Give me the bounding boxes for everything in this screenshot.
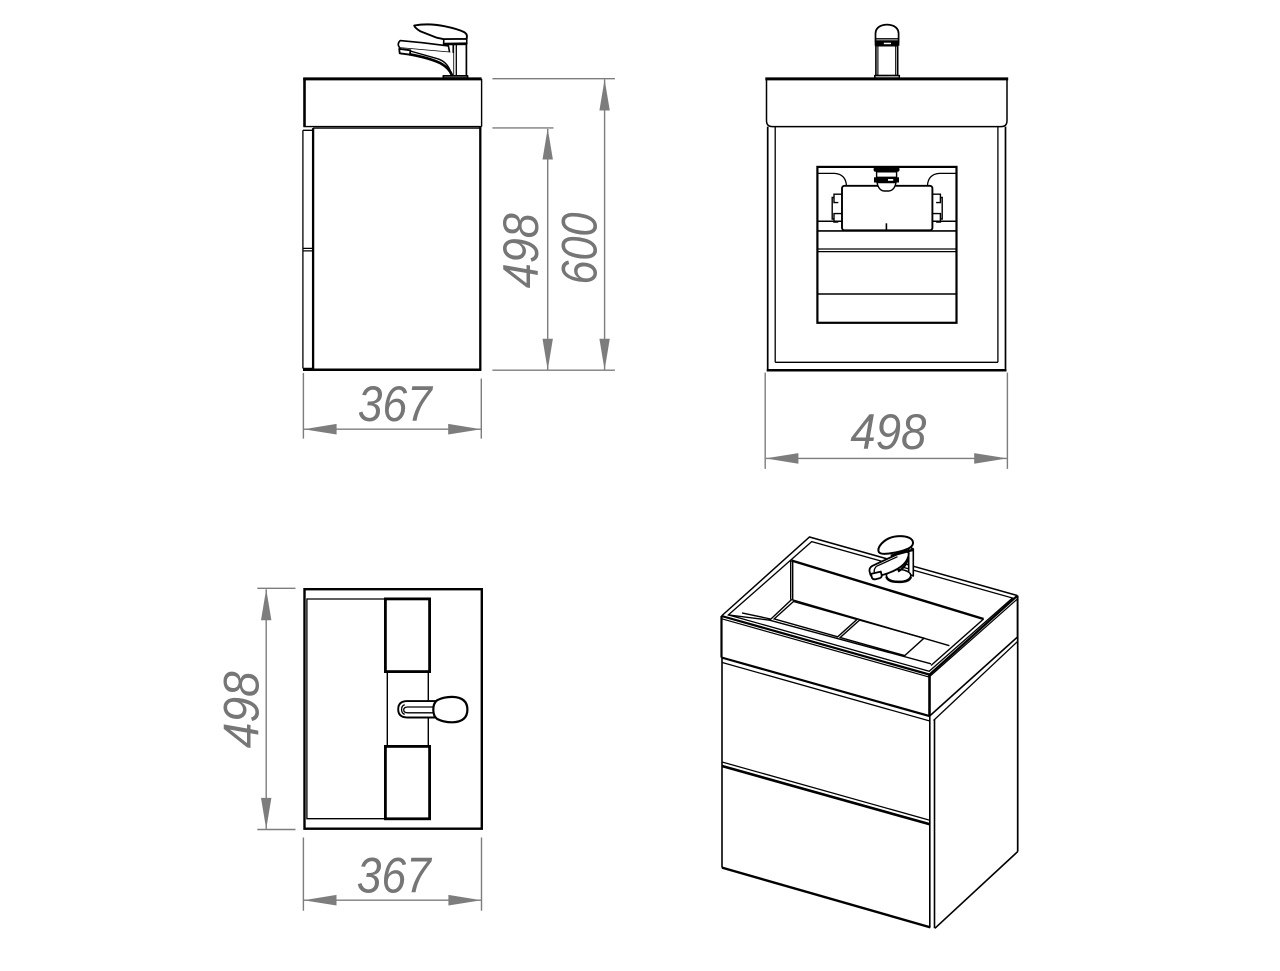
svg-text:367: 367 [357,848,433,904]
svg-text:498: 498 [213,671,269,748]
svg-text:367: 367 [358,376,434,432]
svg-text:600: 600 [552,212,608,284]
svg-text:498: 498 [493,213,549,288]
svg-text:498: 498 [850,404,926,460]
